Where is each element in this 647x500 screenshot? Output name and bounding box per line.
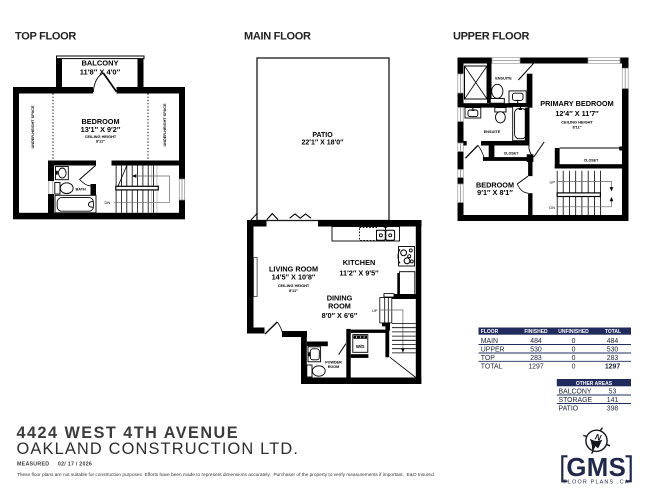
svg-text:PRIMARY BEDROOM: PRIMARY BEDROOM bbox=[540, 99, 613, 108]
svg-text:9′1″ X 8′1″: 9′1″ X 8′1″ bbox=[477, 188, 513, 197]
svg-text:22′1″ X 18′0″: 22′1″ X 18′0″ bbox=[302, 139, 345, 146]
svg-text:8′11″: 8′11″ bbox=[572, 125, 581, 130]
svg-text:KITCHEN: KITCHEN bbox=[343, 258, 375, 267]
svg-text:530: 530 bbox=[607, 347, 619, 354]
svg-text:ENSUITE: ENSUITE bbox=[484, 130, 501, 134]
svg-text:11′2″ X 9′5″: 11′2″ X 9′5″ bbox=[339, 268, 379, 277]
svg-text:W/D: W/D bbox=[356, 344, 365, 349]
svg-text:UNDER-HEIGHT SPACE: UNDER-HEIGHT SPACE bbox=[163, 103, 167, 146]
svg-text:These floor plans are not suit: These floor plans are not suitable for c… bbox=[17, 472, 435, 478]
svg-text:ROOM: ROOM bbox=[328, 302, 351, 311]
svg-text:1297: 1297 bbox=[528, 363, 543, 370]
svg-text:1297: 1297 bbox=[605, 363, 620, 370]
svg-text:UPPER FLOOR: UPPER FLOOR bbox=[453, 31, 530, 43]
svg-text:13′1″ X 9′2″: 13′1″ X 9′2″ bbox=[81, 125, 121, 134]
svg-text:TOP FLOOR: TOP FLOOR bbox=[15, 31, 76, 43]
svg-text:OAKLAND CONSTRUCTION LTD.: OAKLAND CONSTRUCTION LTD. bbox=[17, 440, 300, 458]
svg-text:484: 484 bbox=[607, 338, 619, 345]
svg-text:DN: DN bbox=[105, 200, 111, 205]
svg-text:FINISHED: FINISHED bbox=[524, 329, 548, 335]
svg-text:0: 0 bbox=[572, 338, 576, 345]
svg-text:141: 141 bbox=[607, 397, 619, 404]
svg-text:530: 530 bbox=[530, 347, 542, 354]
svg-text:N: N bbox=[594, 431, 603, 442]
svg-text:0: 0 bbox=[572, 363, 576, 370]
svg-text:ENSUITE: ENSUITE bbox=[495, 76, 512, 80]
svg-text:ROOM: ROOM bbox=[328, 365, 339, 369]
svg-text:484: 484 bbox=[530, 338, 542, 345]
svg-text:UP: UP bbox=[549, 179, 555, 184]
svg-text:UNDER-HEIGHT SPACE: UNDER-HEIGHT SPACE bbox=[31, 105, 35, 148]
svg-text:BALCONY: BALCONY bbox=[81, 59, 118, 68]
svg-text:TOTAL: TOTAL bbox=[481, 363, 503, 370]
svg-text:14′5″ X 10′8″: 14′5″ X 10′8″ bbox=[272, 272, 316, 281]
svg-text:8′11″: 8′11″ bbox=[96, 139, 105, 144]
svg-text:PATIO: PATIO bbox=[312, 132, 333, 139]
svg-text:MAIN FLOOR: MAIN FLOOR bbox=[244, 31, 311, 43]
svg-text:POWDER: POWDER bbox=[325, 360, 342, 364]
svg-text:BALCONY: BALCONY bbox=[559, 389, 592, 396]
svg-text:FLOOR PLANS .CA: FLOOR PLANS .CA bbox=[563, 480, 629, 486]
svg-text:GMS: GMS bbox=[566, 454, 626, 482]
svg-text:BATH: BATH bbox=[76, 187, 87, 191]
svg-text:398: 398 bbox=[607, 406, 619, 413]
svg-text:UNFINISHED: UNFINISHED bbox=[558, 329, 589, 335]
svg-text:DN: DN bbox=[549, 205, 555, 210]
svg-text:UP: UP bbox=[372, 308, 378, 313]
svg-text:12′4″ X 11′7″: 12′4″ X 11′7″ bbox=[555, 109, 599, 118]
svg-text:TOTAL: TOTAL bbox=[605, 329, 621, 335]
svg-text:PATIO: PATIO bbox=[559, 406, 579, 413]
svg-text:MAIN: MAIN bbox=[481, 338, 498, 345]
svg-text:MEASURED 02/ 17 / 2026: MEASURED 02/ 17 / 2026 bbox=[17, 461, 92, 467]
svg-text:8′0″ X 6′6″: 8′0″ X 6′6″ bbox=[322, 311, 358, 320]
svg-text:53: 53 bbox=[609, 389, 617, 396]
svg-text:CLOSET: CLOSET bbox=[504, 152, 519, 156]
svg-text:8′11″: 8′11″ bbox=[289, 288, 298, 293]
svg-text:STORAGE: STORAGE bbox=[559, 397, 593, 404]
svg-text:UPPER: UPPER bbox=[481, 347, 505, 354]
svg-text:FLOOR: FLOOR bbox=[481, 329, 499, 335]
svg-text:0: 0 bbox=[572, 347, 576, 354]
svg-text:CLOSET: CLOSET bbox=[584, 158, 599, 162]
svg-text:OTHER AREAS: OTHER AREAS bbox=[576, 381, 613, 387]
